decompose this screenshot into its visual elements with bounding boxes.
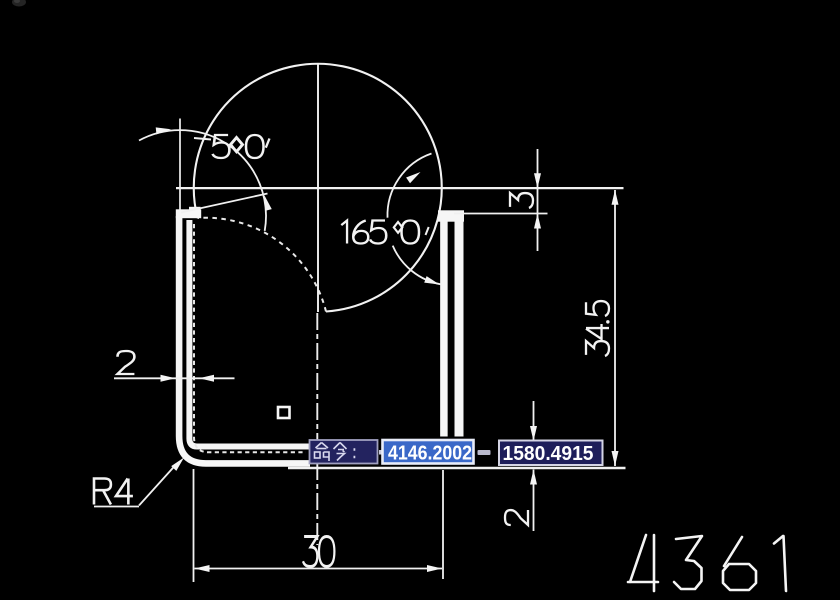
svg-text:4146.2002: 4146.2002 <box>388 443 472 465</box>
svg-text:1580.4915: 1580.4915 <box>503 443 594 465</box>
